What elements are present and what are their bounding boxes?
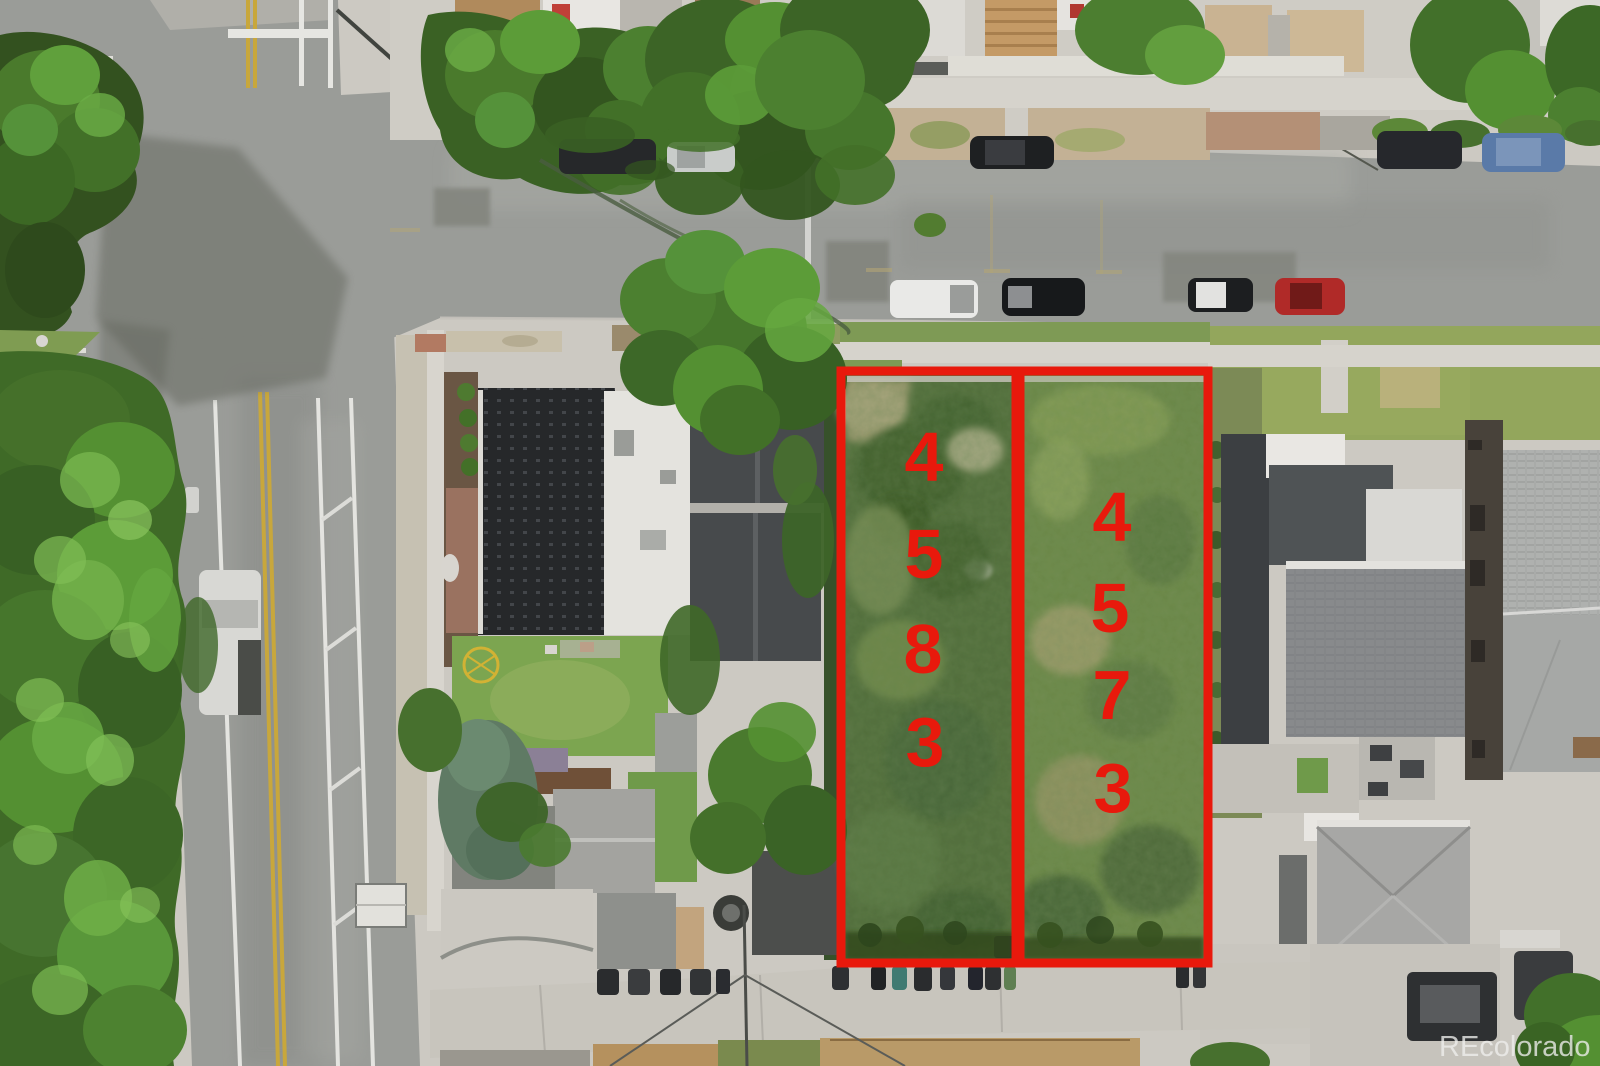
svg-text:7: 7 [1093,656,1132,734]
svg-text:4: 4 [905,418,944,496]
svg-text:8: 8 [904,610,943,688]
svg-text:5: 5 [1091,569,1130,647]
svg-text:REcolorado: REcolorado [1439,1031,1591,1063]
svg-text:5: 5 [905,515,944,593]
svg-text:3: 3 [1094,749,1133,827]
svg-text:3: 3 [906,703,945,781]
svg-text:4: 4 [1093,478,1132,556]
